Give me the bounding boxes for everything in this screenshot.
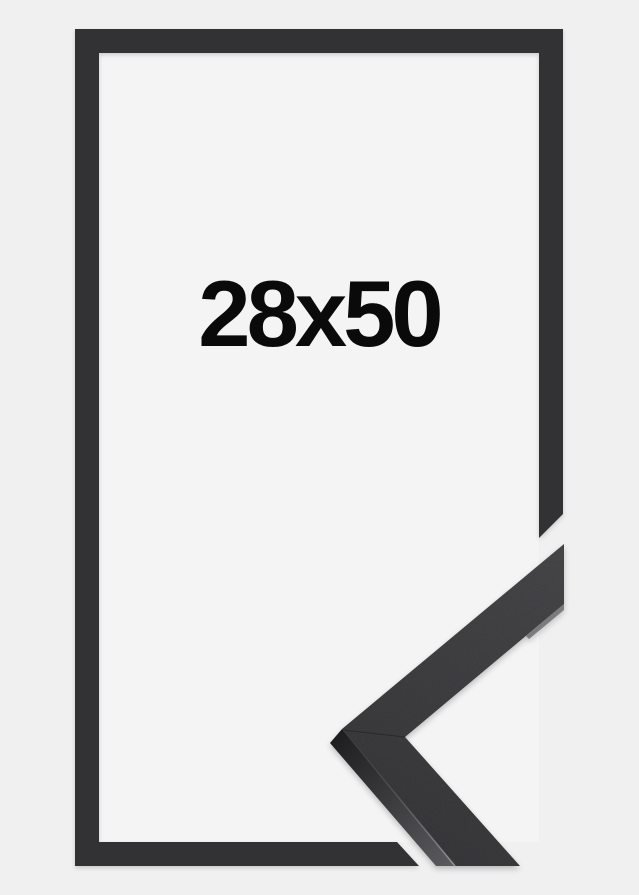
frame-size-label: 28x50: [99, 267, 539, 361]
frame-photo-svg: [0, 0, 639, 895]
frame-interior: [99, 53, 539, 842]
frame-border-right: [539, 29, 563, 538]
product-image: 28x50: [0, 0, 639, 895]
frame-border-bottom: [75, 842, 419, 866]
frame-border-top: [75, 29, 563, 53]
frame-border-left: [75, 29, 99, 866]
